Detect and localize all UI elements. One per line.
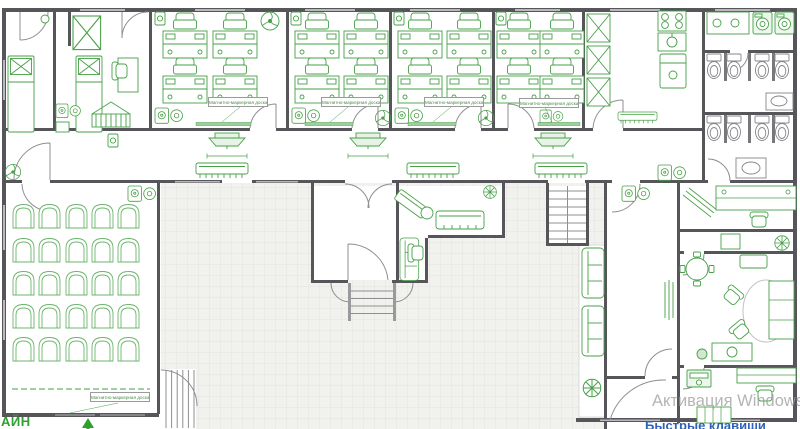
marker-board bbox=[305, 123, 353, 126]
logo-text: АЙН bbox=[1, 414, 31, 429]
toilet-icon bbox=[727, 54, 741, 79]
windows-activation-watermark: Активация Windows bbox=[652, 392, 800, 411]
room-classroom-1 bbox=[155, 12, 279, 126]
room-lecture-hall bbox=[12, 186, 155, 413]
classroom-desk bbox=[540, 58, 584, 103]
lounge-sofa bbox=[436, 211, 484, 229]
room-classroom-2 bbox=[291, 12, 391, 126]
room-sickbay-1 bbox=[8, 15, 49, 132]
board-label-classroom-1: Магнитно-маркерная доска bbox=[208, 97, 268, 107]
room-office-2 bbox=[721, 234, 789, 250]
marker-board bbox=[408, 123, 456, 126]
drinking-fountain bbox=[350, 133, 386, 149]
board-label-lecture-hall: Магнитно-маркерная доска bbox=[90, 392, 150, 402]
toilet-icon bbox=[775, 116, 789, 141]
toilet-icon bbox=[775, 54, 789, 79]
floor-plan-screenshot: Магнитно-маркерная доска Магнитно-маркер… bbox=[0, 0, 800, 429]
toilet-icon bbox=[755, 116, 769, 141]
couch bbox=[582, 306, 604, 356]
classroom-desk bbox=[344, 13, 388, 58]
drinking-fountain bbox=[535, 133, 571, 149]
marker-board bbox=[196, 123, 251, 126]
toilet-icon bbox=[727, 116, 741, 141]
corridor-bench bbox=[196, 163, 248, 178]
corridor-bench bbox=[407, 163, 459, 178]
board-label-classroom-2: Магнитно-маркерная доска bbox=[321, 97, 381, 107]
room-laundry bbox=[707, 12, 794, 34]
classroom-desk bbox=[447, 13, 491, 58]
classroom-desk bbox=[163, 58, 207, 103]
corridor-bench bbox=[535, 163, 587, 178]
room-office-executive bbox=[680, 252, 794, 361]
room-classroom-4 bbox=[496, 12, 584, 126]
board-label-classroom-3: Магнитно-маркерная доска bbox=[424, 97, 484, 107]
plant-icon bbox=[583, 379, 601, 397]
toilet-icon bbox=[755, 54, 769, 79]
floor-plan-drawing bbox=[0, 0, 800, 429]
classroom-desk bbox=[213, 13, 257, 58]
room-office-1 bbox=[683, 186, 796, 227]
copier-icon bbox=[687, 370, 711, 387]
room-kitchen bbox=[587, 11, 686, 123]
marker-board bbox=[538, 123, 580, 126]
drinking-fountain bbox=[209, 133, 245, 149]
classroom-desk bbox=[497, 58, 541, 103]
shortcut-keys-link[interactable]: Быстрые клавиши bbox=[645, 418, 766, 429]
classroom-desk bbox=[295, 13, 339, 58]
board-label-classroom-4: Магнитно-маркерная доска bbox=[519, 98, 579, 108]
room-classroom-3 bbox=[394, 12, 494, 126]
toilet-icon bbox=[707, 116, 721, 141]
corridor bbox=[5, 133, 685, 180]
toilet-icon bbox=[707, 54, 721, 79]
classroom-desk bbox=[398, 13, 442, 58]
logo-icon bbox=[82, 418, 94, 429]
couch bbox=[582, 248, 604, 298]
classroom-desk bbox=[540, 13, 584, 58]
classroom-desk bbox=[163, 13, 207, 58]
